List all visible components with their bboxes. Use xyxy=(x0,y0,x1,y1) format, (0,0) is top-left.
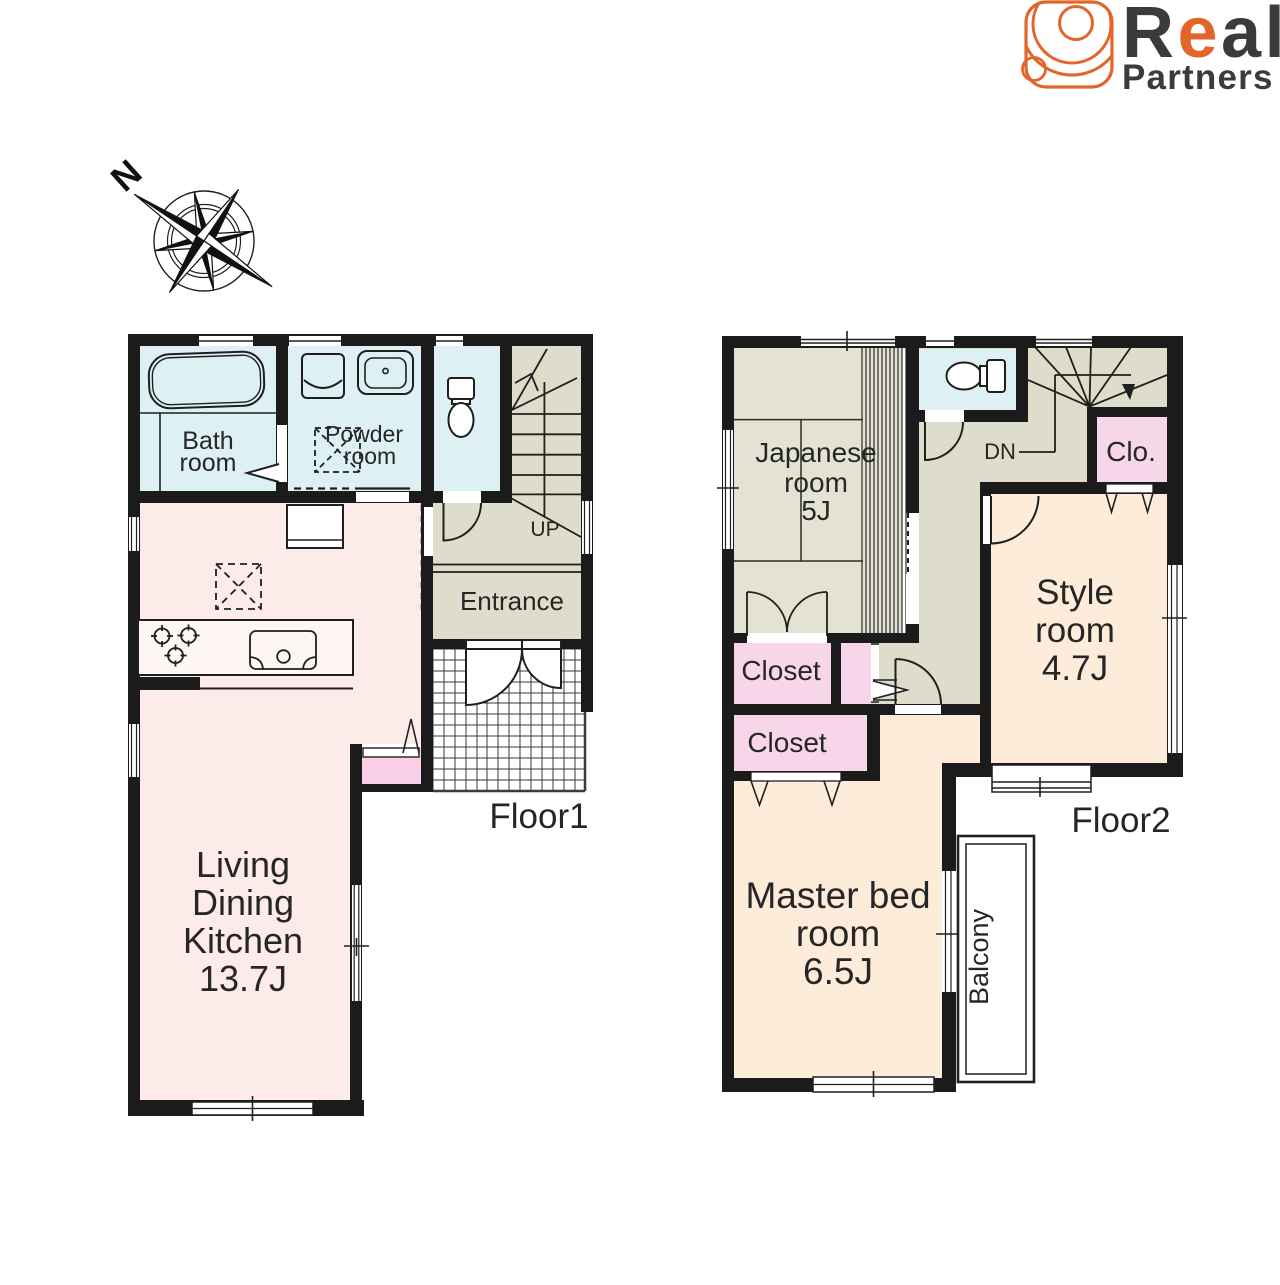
svg-text:5J: 5J xyxy=(801,495,831,526)
svg-text:room: room xyxy=(784,467,848,498)
svg-text:Kitchen: Kitchen xyxy=(183,920,303,961)
svg-text:Living: Living xyxy=(196,844,290,885)
svg-text:room: room xyxy=(796,913,880,954)
svg-text:Balcony: Balcony xyxy=(964,908,994,1005)
svg-text:Japanese: Japanese xyxy=(755,437,876,468)
svg-text:4.7J: 4.7J xyxy=(1042,649,1108,688)
svg-text:Floor1: Floor1 xyxy=(489,797,588,836)
svg-text:DN: DN xyxy=(984,439,1016,464)
svg-text:Floor2: Floor2 xyxy=(1071,801,1170,840)
svg-text:Entrance: Entrance xyxy=(460,586,564,616)
svg-text:room: room xyxy=(180,449,237,477)
svg-text:Style: Style xyxy=(1036,573,1114,612)
svg-text:13.7J: 13.7J xyxy=(199,958,287,999)
svg-text:room: room xyxy=(1035,611,1115,650)
svg-text:6.5J: 6.5J xyxy=(803,951,873,992)
svg-text:Clo.: Clo. xyxy=(1106,436,1156,467)
svg-text:room: room xyxy=(344,443,396,469)
svg-text:Closet: Closet xyxy=(747,727,827,758)
svg-text:UP: UP xyxy=(530,518,559,541)
svg-text:Closet: Closet xyxy=(741,655,821,686)
svg-text:Dining: Dining xyxy=(192,882,294,923)
svg-text:Partners: Partners xyxy=(1122,58,1274,97)
svg-text:Master bed: Master bed xyxy=(745,875,930,916)
